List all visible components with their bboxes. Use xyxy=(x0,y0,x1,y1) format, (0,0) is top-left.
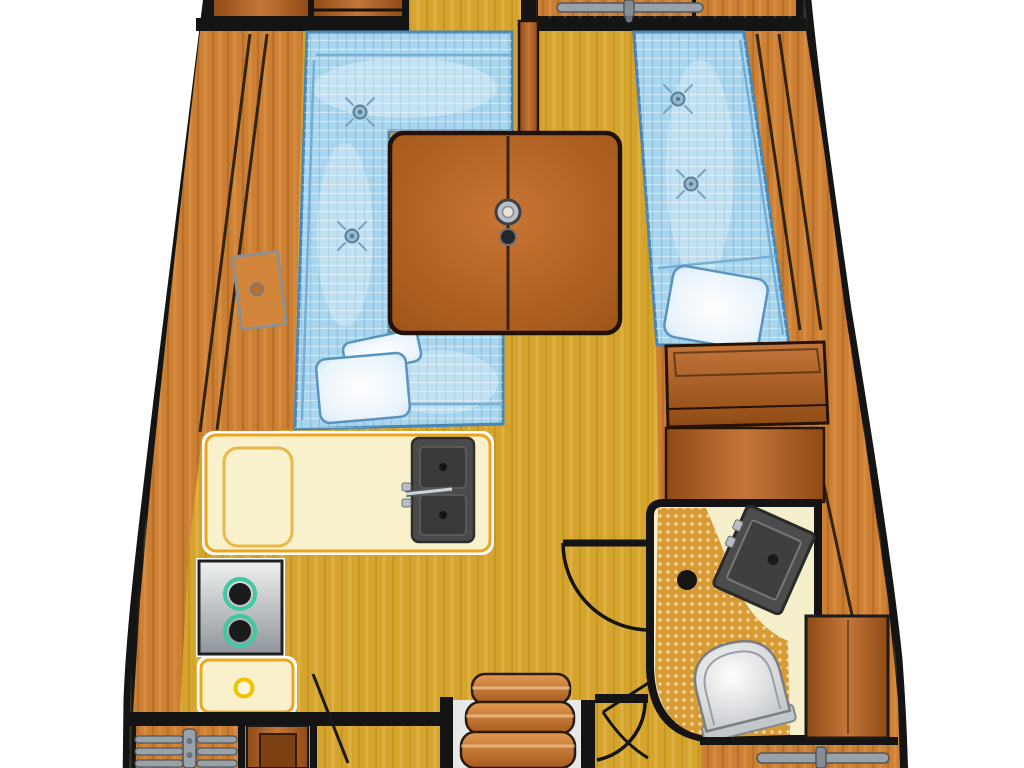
table-hub xyxy=(496,200,520,245)
step-rail xyxy=(581,700,595,768)
partition-line xyxy=(238,726,245,768)
stbd-pillow xyxy=(662,264,769,352)
port-locker xyxy=(233,251,287,329)
drain-icon xyxy=(439,511,447,519)
partition-line xyxy=(310,726,317,768)
floor-plan-stage xyxy=(0,0,1024,768)
stove-burner-icon xyxy=(225,579,255,609)
head-compartment xyxy=(650,503,818,743)
galley-stove xyxy=(196,558,285,657)
locker-knob-icon xyxy=(250,283,263,296)
step-rail xyxy=(440,697,453,768)
drain-icon xyxy=(439,463,447,471)
fwd-cabinets xyxy=(212,0,404,18)
floor-plan-canvas xyxy=(0,0,1024,768)
quarter-panel xyxy=(666,428,824,502)
stove-burner-icon xyxy=(225,616,255,646)
galley-drawer xyxy=(197,656,297,716)
saloon-table xyxy=(390,133,620,333)
stbd-cabinet xyxy=(666,342,828,427)
galley-sink xyxy=(402,438,474,542)
aft-cabin-door-port xyxy=(247,726,308,768)
pillow xyxy=(315,352,410,424)
drawer-knob-icon xyxy=(236,680,253,697)
head-drain xyxy=(677,570,697,590)
aft-bulkhead xyxy=(128,712,447,726)
mast-post xyxy=(519,21,538,135)
